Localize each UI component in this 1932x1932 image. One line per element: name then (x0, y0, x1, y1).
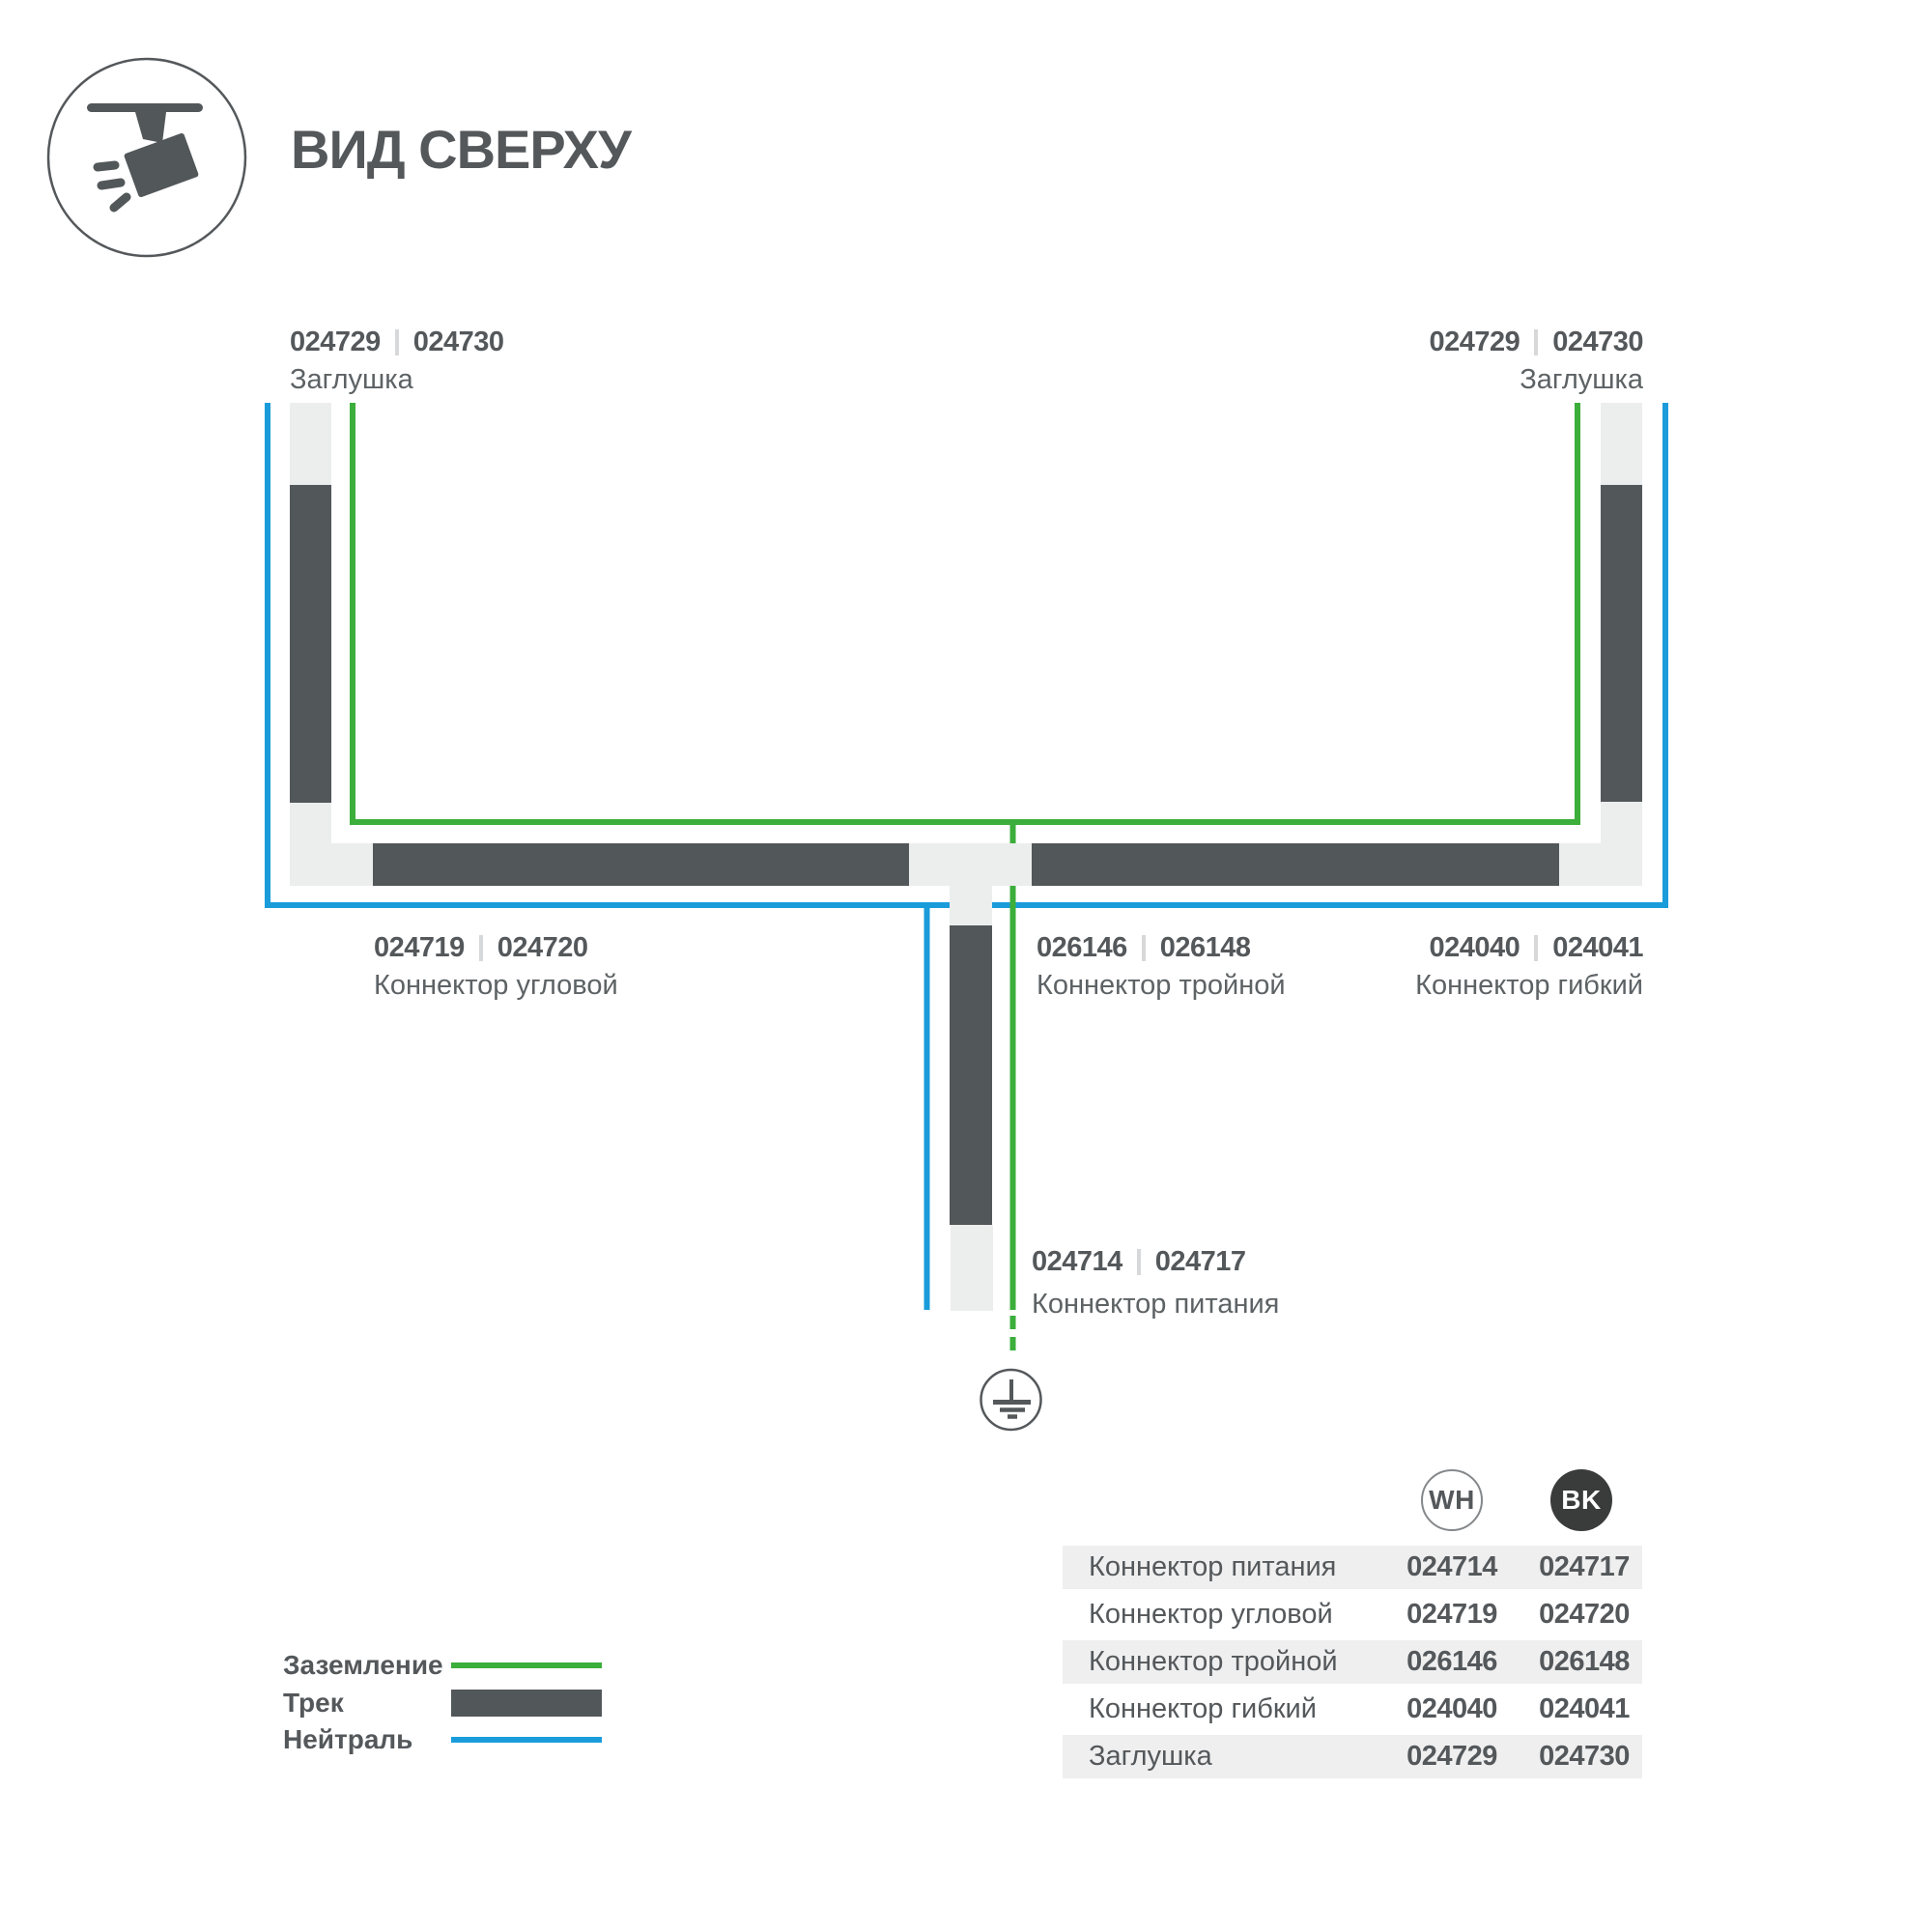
code-wh: 024714 (1032, 1247, 1122, 1276)
row-bk-code: 024720 (1538, 1599, 1631, 1631)
part-name: Заглушка (290, 365, 504, 394)
row-bk-code: 026148 (1538, 1646, 1631, 1678)
corner-connector-left-v (290, 803, 331, 843)
ground-line-swatch (451, 1662, 602, 1668)
part-name: Коннектор гибкий (1415, 971, 1643, 1000)
table-row: Коннектор угловой 024719 024720 (1063, 1593, 1642, 1640)
neutral-line-swatch (451, 1737, 602, 1743)
triple-connector-h (909, 843, 1032, 886)
track-bottom-left (373, 843, 909, 886)
triple-connector-stem (950, 886, 992, 925)
row-bk-code: 024041 (1538, 1693, 1631, 1725)
end-cap-left (290, 403, 331, 485)
label-corner-connector: 024719 024720 Коннектор угловой (374, 933, 618, 1000)
code-separator (1534, 329, 1538, 355)
article-table: WH BK Коннектор питания 024714 024717 Ко… (1063, 1469, 1642, 1782)
code-bk: 026148 (1160, 933, 1251, 962)
row-wh-code: 024040 (1406, 1693, 1498, 1725)
code-bk: 024717 (1155, 1247, 1246, 1276)
code-separator (1137, 1249, 1141, 1275)
flex-connector-right-h (1559, 843, 1642, 886)
legend-label: Заземление (283, 1650, 451, 1681)
code-separator (479, 935, 483, 961)
code-bk: 024720 (497, 933, 588, 962)
label-end-cap-right: 024729 024730 Заглушка (1429, 327, 1643, 394)
code-wh: 024729 (290, 327, 381, 356)
flex-connector-right-v (1601, 802, 1642, 843)
track-left (290, 485, 331, 803)
code-wh: 024729 (1429, 327, 1520, 356)
label-power-connector: 024714 024717 Коннектор питания (1032, 1247, 1279, 1319)
legend-item-neutral: Нейтраль (283, 1719, 602, 1761)
part-name: Заглушка (1429, 365, 1643, 394)
page: ВИД СВЕРХУ 024729 (0, 0, 1932, 1932)
code-bk: 024041 (1552, 933, 1643, 962)
table-row: Заглушка 024729 024730 (1063, 1735, 1642, 1782)
bk-color-badge: BK (1550, 1469, 1612, 1531)
track-right (1601, 485, 1642, 802)
row-name: Коннектор гибкий (1063, 1693, 1406, 1725)
row-name: Коннектор угловой (1063, 1599, 1406, 1631)
track-bar-swatch (451, 1690, 602, 1717)
end-cap-right (1601, 403, 1642, 485)
part-name: Коннектор угловой (374, 971, 618, 1000)
track-stem (950, 925, 992, 1225)
legend-item-ground: Заземление (283, 1644, 602, 1687)
row-bk-code: 024730 (1538, 1741, 1631, 1773)
code-bk: 024730 (413, 327, 504, 356)
table-row: Коннектор питания 024714 024717 (1063, 1546, 1642, 1593)
row-name: Заглушка (1063, 1741, 1406, 1773)
table-row: Коннектор гибкий 024040 024041 (1063, 1688, 1642, 1735)
row-wh-code: 024729 (1406, 1741, 1498, 1773)
row-wh-code: 024714 (1406, 1551, 1498, 1583)
row-wh-code: 026146 (1406, 1646, 1498, 1678)
article-table-header: WH BK (1063, 1469, 1642, 1531)
label-triple-connector: 026146 026148 Коннектор тройной (1037, 933, 1286, 1000)
wh-color-badge: WH (1421, 1469, 1483, 1531)
code-wh: 024040 (1429, 933, 1520, 962)
table-row: Коннектор тройной 026146 026148 (1063, 1640, 1642, 1688)
code-bk: 024730 (1552, 327, 1643, 356)
label-flex-connector: 024040 024041 Коннектор гибкий (1415, 933, 1643, 1000)
code-separator (1534, 935, 1538, 961)
part-name: Коннектор питания (1032, 1290, 1279, 1319)
code-separator (395, 329, 399, 355)
row-wh-code: 024719 (1406, 1599, 1498, 1631)
power-connector (951, 1225, 993, 1311)
legend-label: Трек (283, 1688, 451, 1719)
legend-label: Нейтраль (283, 1724, 451, 1755)
corner-connector-left-h (290, 843, 373, 886)
code-wh: 024719 (374, 933, 465, 962)
label-end-cap-left: 024729 024730 Заглушка (290, 327, 504, 394)
row-bk-code: 024717 (1538, 1551, 1631, 1583)
neutral-wire (268, 403, 1665, 905)
row-name: Коннектор тройной (1063, 1646, 1406, 1678)
earth-symbol (981, 1370, 1041, 1430)
row-name: Коннектор питания (1063, 1551, 1406, 1583)
part-name: Коннектор тройной (1037, 971, 1286, 1000)
code-separator (1142, 935, 1146, 961)
ground-wire (353, 403, 1577, 822)
track-bottom-right (1032, 843, 1559, 886)
code-wh: 026146 (1037, 933, 1127, 962)
